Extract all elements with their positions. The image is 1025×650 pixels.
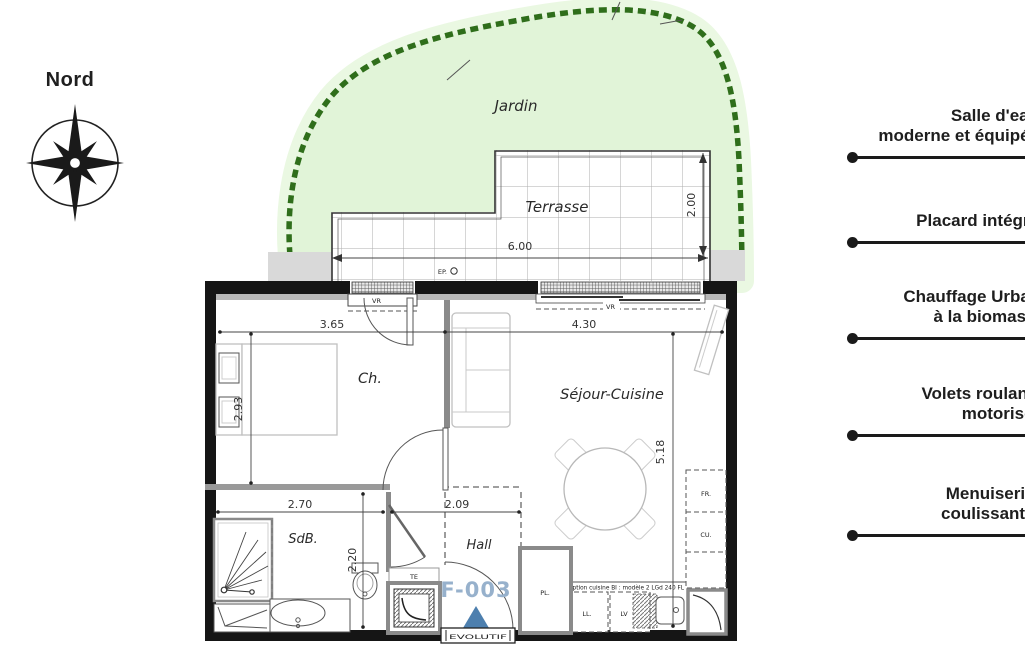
feature-rule [852, 337, 1025, 340]
bullet-dot-icon [847, 152, 858, 163]
bullet-dot-icon [847, 530, 858, 541]
feature-item: Placard intégré [600, 211, 1025, 244]
feature-item: Menuiseriescoulissantes [600, 484, 1025, 537]
feature-list: Salle d'eaumoderne et équipée Placard in… [0, 0, 1025, 650]
feature-rule [852, 241, 1025, 244]
bullet-dot-icon [847, 430, 858, 441]
bullet-dot-icon [847, 237, 858, 248]
bullet-dot-icon [847, 333, 858, 344]
feature-item: Salle d'eaumoderne et équipée [600, 106, 1025, 159]
feature-item: Volets roulantsmotorisés [600, 384, 1025, 437]
feature-rule [852, 156, 1025, 159]
feature-rule [852, 534, 1025, 537]
feature-rule [852, 434, 1025, 437]
feature-item: Chauffage Urbainà la biomasse [600, 287, 1025, 340]
